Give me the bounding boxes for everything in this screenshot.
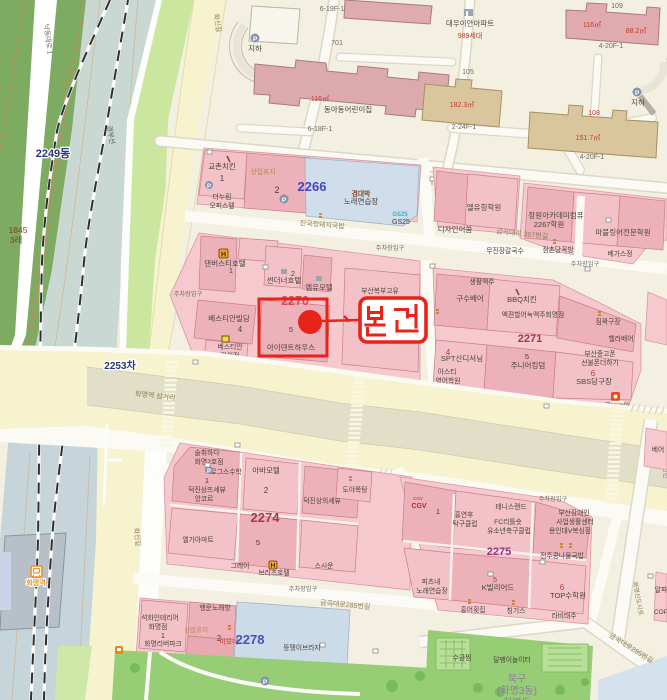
svg-text:그레이: 그레이 <box>231 561 250 570</box>
svg-text:P: P <box>635 90 640 97</box>
svg-text:2: 2 <box>274 185 279 195</box>
svg-text:대우이안아파트: 대우이안아파트 <box>446 18 494 28</box>
svg-text:베스티안빌딩: 베스티안빌딩 <box>208 313 249 323</box>
svg-text:베스티안: 베스티안 <box>217 342 242 351</box>
svg-text:테니스랜드: 테니스랜드 <box>495 502 526 511</box>
svg-text:홍어횟집: 홍어횟집 <box>460 605 485 614</box>
svg-text:2: 2 <box>291 269 295 278</box>
svg-text:4-20F-1: 4-20F-1 <box>599 43 624 50</box>
svg-text:주차장입구: 주차장입구 <box>289 585 318 593</box>
svg-text:무진장갈국수: 무진장갈국수 <box>486 246 524 255</box>
svg-text:지하: 지하 <box>631 97 645 107</box>
svg-text:2266: 2266 <box>298 179 327 194</box>
svg-text:P: P <box>207 184 211 190</box>
svg-text:알파: 알파 <box>655 585 667 594</box>
svg-text:더누림: 더누림 <box>213 192 232 201</box>
svg-text:CGV: CGV <box>411 503 427 510</box>
svg-text:댄버스티호텔: 댄버스티호텔 <box>204 258 245 268</box>
svg-text:오피스텔: 오피스텔 <box>209 201 234 210</box>
svg-text:화명점: 화명점 <box>149 622 168 631</box>
svg-text:2253차: 2253차 <box>104 359 136 372</box>
svg-text:앙코르: 앙코르 <box>195 495 214 503</box>
svg-text:로그스수학: 로그스수학 <box>210 467 241 476</box>
svg-text:H: H <box>271 563 276 570</box>
svg-text:108: 108 <box>588 110 600 117</box>
svg-text:P: P <box>282 197 287 204</box>
svg-text:화명리버파크: 화명리버파크 <box>144 639 182 648</box>
svg-text:116㎡: 116㎡ <box>583 21 601 29</box>
svg-text:COP: COP <box>654 609 667 616</box>
svg-text:151.7㎡: 151.7㎡ <box>576 134 601 142</box>
svg-text:4: 4 <box>238 325 243 334</box>
svg-text:2-24F-1: 2-24F-1 <box>452 124 477 131</box>
svg-text:3래: 3래 <box>10 235 23 245</box>
svg-text:탁구클럽: 탁구클럽 <box>452 519 477 528</box>
svg-text:2271: 2271 <box>518 333 542 345</box>
svg-text:1: 1 <box>161 631 165 640</box>
svg-text:노래연습장: 노래연습장 <box>416 586 447 595</box>
svg-text:행운노래방: 행운노래방 <box>199 603 230 612</box>
svg-text:2270: 2270 <box>281 294 309 308</box>
svg-text:엠유모텔: 엠유모텔 <box>305 283 333 292</box>
svg-text:용인대V복싱짐: 용인대V복싱짐 <box>549 526 591 535</box>
svg-text:주니어킹덤: 주니어킹덤 <box>511 360 546 370</box>
svg-text:BBQ치킨: BBQ치킨 <box>507 294 537 304</box>
svg-text:H: H <box>221 252 226 259</box>
svg-text:P: P <box>263 679 268 686</box>
svg-text:지하: 지하 <box>248 43 262 53</box>
svg-text:1845: 1845 <box>9 225 28 235</box>
svg-text:석화인테리어: 석화인테리어 <box>141 613 179 622</box>
svg-text:GS25: GS25 <box>392 212 408 218</box>
svg-text:701: 701 <box>331 40 343 47</box>
svg-text:생활맥주: 생활맥주 <box>469 277 494 286</box>
svg-text:상업휴지: 상업휴지 <box>184 625 208 634</box>
svg-text:엘가아마트: 엘가아마트 <box>182 535 213 544</box>
svg-text:액젼할어녹맥주회명점: 액젼할어녹맥주회명점 <box>502 310 565 319</box>
svg-text:1: 1 <box>229 268 233 275</box>
svg-text:덕진상의셰뷰: 덕진상의셰뷰 <box>303 496 341 505</box>
svg-text:칭기스: 칭기스 <box>507 606 526 615</box>
svg-text:짐꽉구장: 짐꽉구장 <box>595 317 620 326</box>
svg-text:5: 5 <box>256 538 260 547</box>
svg-text:유소년축구클럽: 유소년축구클럽 <box>487 526 531 535</box>
svg-text:동아동어린이집: 동아동어린이집 <box>324 104 372 114</box>
svg-text:SPT산디서닝: SPT산디서닝 <box>441 353 483 363</box>
svg-text:5: 5 <box>289 325 293 334</box>
svg-text:K빌리어드: K빌리어드 <box>482 582 515 592</box>
svg-text:아바모텔: 아바모텔 <box>252 465 280 475</box>
svg-text:105: 105 <box>462 69 474 76</box>
svg-text:라비태주: 라비태주 <box>551 611 576 620</box>
svg-text:2274: 2274 <box>251 510 281 525</box>
svg-text:디자인어쑴: 디자인어쑴 <box>438 224 473 234</box>
svg-text:88.2㎡: 88.2㎡ <box>626 27 647 35</box>
svg-text:교촌치킨: 교촌치킨 <box>208 161 236 171</box>
svg-text:4-20F-1: 4-20F-1 <box>580 154 605 161</box>
svg-text:마블링어전문학원: 마블링어전문학원 <box>595 227 650 237</box>
svg-text:스시운: 스시운 <box>315 562 334 570</box>
svg-text:브리즈호텔: 브리즈호텔 <box>258 568 289 577</box>
svg-text:2267학원: 2267학원 <box>534 219 565 229</box>
svg-text:주차장입구: 주차장입구 <box>539 495 568 503</box>
svg-text:2278: 2278 <box>236 632 265 647</box>
svg-text:피츠내: 피츠내 <box>422 577 441 586</box>
svg-text:1: 1 <box>436 507 440 516</box>
svg-text:헬라베어: 헬라베어 <box>608 334 633 343</box>
svg-text:상업휴지: 상업휴지 <box>250 167 275 176</box>
svg-text:뚱땡이브라자: 뚱땡이브라자 <box>283 643 321 652</box>
svg-text:북구: 북구 <box>508 673 526 685</box>
svg-text:달팽이놀이터: 달팽이놀이터 <box>493 655 531 664</box>
svg-text:구수베어: 구수베어 <box>456 293 484 303</box>
svg-text:(화명3동): (화명3동) <box>497 685 537 697</box>
svg-text:노래연습장: 노래연습장 <box>344 196 379 206</box>
svg-text:주차장입구: 주차장입구 <box>174 290 203 298</box>
svg-text:6-18F-1: 6-18F-1 <box>308 126 333 133</box>
svg-text:5: 5 <box>525 352 529 361</box>
svg-text:선불폰더하기: 선불폰더하기 <box>581 358 619 367</box>
svg-text:6-19F-1: 6-19F-1 <box>320 6 345 13</box>
svg-text:장원아카데미컴퓨: 장원아카데미컴퓨 <box>528 210 583 220</box>
svg-text:P: P <box>207 469 211 475</box>
svg-text:주차장입구: 주차장입구 <box>376 244 405 252</box>
svg-text:수금찜: 수금찜 <box>453 653 472 662</box>
svg-text:술취하다: 술취하다 <box>194 448 220 457</box>
svg-text:부산중고폰: 부산중고폰 <box>584 349 615 358</box>
svg-text:GS25: GS25 <box>392 219 410 226</box>
svg-text:점촌당꼭방: 점촌당꼭방 <box>542 245 573 254</box>
svg-text:전주콩나물국밥: 전주콩나물국밥 <box>540 551 584 560</box>
svg-text:CGV: CGV <box>413 496 423 501</box>
svg-text:부산장애인: 부산장애인 <box>558 508 589 517</box>
svg-text:116㎡: 116㎡ <box>311 95 329 103</box>
svg-text:109: 109 <box>611 3 623 10</box>
svg-text:2249동: 2249동 <box>36 147 71 160</box>
svg-text:덕진상뜨셰뷰: 덕진상뜨셰뷰 <box>188 485 226 494</box>
svg-text:1: 1 <box>220 174 225 183</box>
svg-text:도야쭉탕: 도야쭉탕 <box>342 485 367 494</box>
svg-text:엘유힝학원: 엘유힝학원 <box>467 202 502 212</box>
svg-text:부산복부고유: 부산복부고유 <box>361 286 399 295</box>
svg-text:TOP수학원: TOP수학원 <box>550 590 586 600</box>
svg-text:홍연후: 홍연후 <box>455 510 474 519</box>
svg-text:베어: 베어 <box>652 445 665 454</box>
svg-text:989세대: 989세대 <box>458 31 483 40</box>
svg-text:화명역: 화명역 <box>26 578 45 587</box>
svg-text:아스티: 아스티 <box>438 367 457 376</box>
svg-text:아이덴트하우스: 아이덴트하우스 <box>267 342 315 352</box>
svg-text:1: 1 <box>205 476 209 485</box>
svg-text:베가스정: 베가스정 <box>607 249 632 258</box>
svg-text:182.3㎡: 182.3㎡ <box>450 101 475 109</box>
svg-text:P: P <box>253 36 258 43</box>
svg-text:FC리틀숏: FC리틀숏 <box>494 517 522 526</box>
svg-text:썬더너호텔: 썬더너호텔 <box>267 275 302 285</box>
svg-text:사업생활센터: 사업생활센터 <box>556 517 594 526</box>
svg-text:2275: 2275 <box>487 546 511 558</box>
svg-text:SBS당구장: SBS당구장 <box>576 376 612 386</box>
svg-text:2: 2 <box>264 486 269 495</box>
